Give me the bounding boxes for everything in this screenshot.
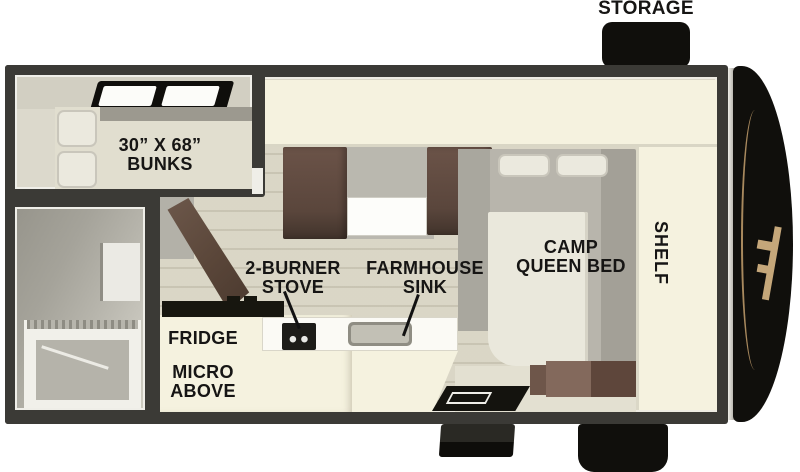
pillow [498,154,550,177]
refrigerator-top [162,301,284,317]
shower-curtain [27,320,138,329]
upper-cabinet-left [283,147,347,239]
bunks-label: 30” X 68” BUNKS [90,136,230,174]
bed-storage-box [546,361,591,397]
sink-label: FARMHOUSE SINK [362,259,488,297]
cabinet-latch [244,296,257,302]
bed-label-line1: CAMP [498,238,644,257]
bed-storage-box [530,365,546,395]
bunk-rail [100,107,252,121]
shelf-label: SHELF [646,210,670,296]
entry-step [439,424,515,457]
floorplan-canvas: STORAGE [0,0,800,472]
skylight-pane [161,86,220,106]
pillow [556,154,608,177]
cabinet-latch [227,296,240,302]
brand-logo-bar [762,226,782,300]
overhead-cabinet [252,80,717,147]
storage-label: STORAGE [560,0,732,19]
sink-basin [351,325,409,343]
bed-label: CAMP QUEEN BED [498,238,644,276]
skylight-pane [98,86,157,106]
entry-mat-trim [446,392,492,404]
stove-label-line1: 2-BURNER [233,259,353,278]
micro-label-line1: MICRO [156,363,250,382]
roof-storage-compartment [602,22,690,68]
sink-label-line2: SINK [362,278,488,297]
doorway-trim [252,168,263,194]
stove-label: 2-BURNER STOVE [233,259,353,297]
bunks-label-line1: 30” X 68” [90,136,230,155]
kitchen-window [347,197,427,236]
brand-logo-bar [757,264,772,274]
micro-label-line2: ABOVE [156,382,250,401]
micro-label: MICRO ABOVE [156,363,250,401]
fridge-label: FRIDGE [160,329,246,348]
stove-label-line2: STOVE [233,278,353,297]
sink-label-line1: FARMHOUSE [362,259,488,278]
rear-storage-compartment [578,424,668,472]
bathroom-vanity [100,243,140,301]
bed-storage-box [591,361,636,397]
bunks-label-line2: BUNKS [90,155,230,174]
bed-headboard [458,149,492,331]
bed-blanket [488,212,588,366]
bed-label-line2: QUEEN BED [498,257,644,276]
